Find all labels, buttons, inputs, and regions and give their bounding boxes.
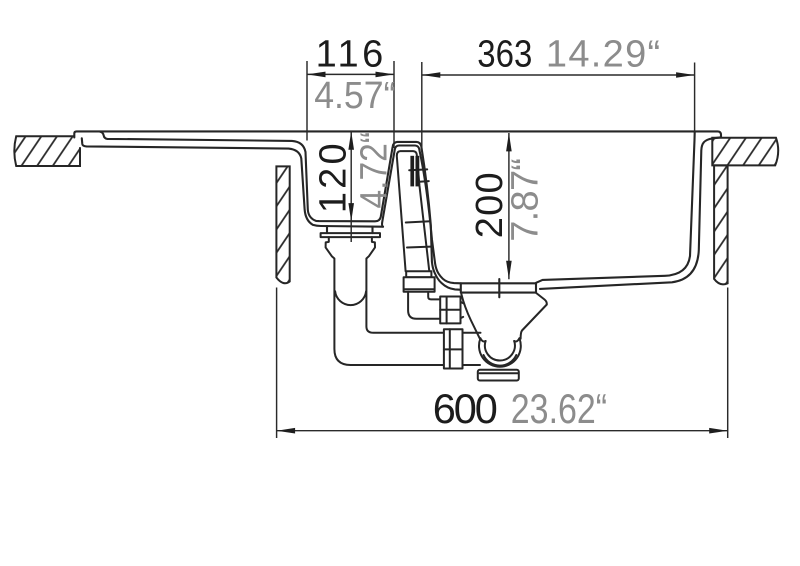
svg-text:120: 120 [312, 143, 354, 213]
svg-text:4.57“: 4.57“ [314, 75, 395, 117]
svg-text:14.29“: 14.29“ [546, 34, 660, 76]
svg-text:7.87“: 7.87“ [504, 158, 546, 242]
svg-text:600: 600 [433, 385, 498, 432]
svg-text:363: 363 [477, 34, 532, 76]
svg-text:23.62“: 23.62“ [511, 385, 607, 432]
svg-text:116: 116 [316, 33, 384, 75]
svg-text:4.72“: 4.72“ [354, 132, 396, 209]
